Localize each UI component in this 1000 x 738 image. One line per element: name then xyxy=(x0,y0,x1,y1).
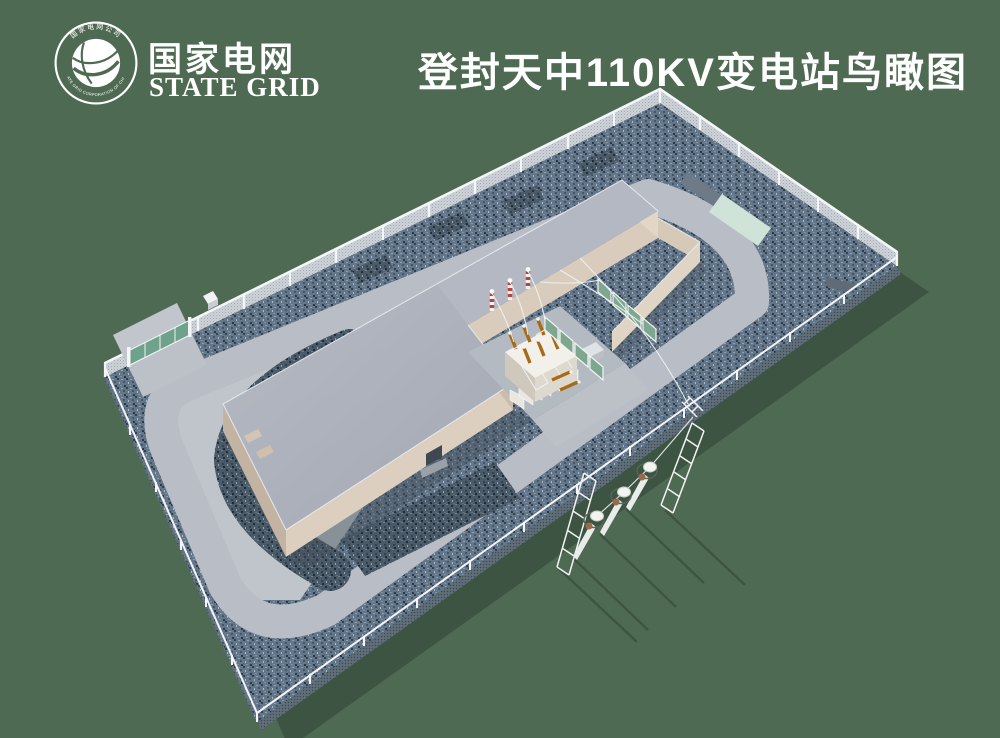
substation-3d-rendering xyxy=(0,0,1000,738)
slide-canvas: 国家电网公司 STATE GRID CORPORATION OF CHINA 国… xyxy=(0,0,1000,738)
logo-english-name: STATE GRID xyxy=(149,72,321,103)
logo-ring-text-top: 国家电网公司 xyxy=(69,22,123,40)
state-grid-logo: 国家电网公司 STATE GRID CORPORATION OF CHINA xyxy=(53,20,139,106)
page-title: 登封天中110KV变电站鸟瞰图 xyxy=(418,40,968,98)
